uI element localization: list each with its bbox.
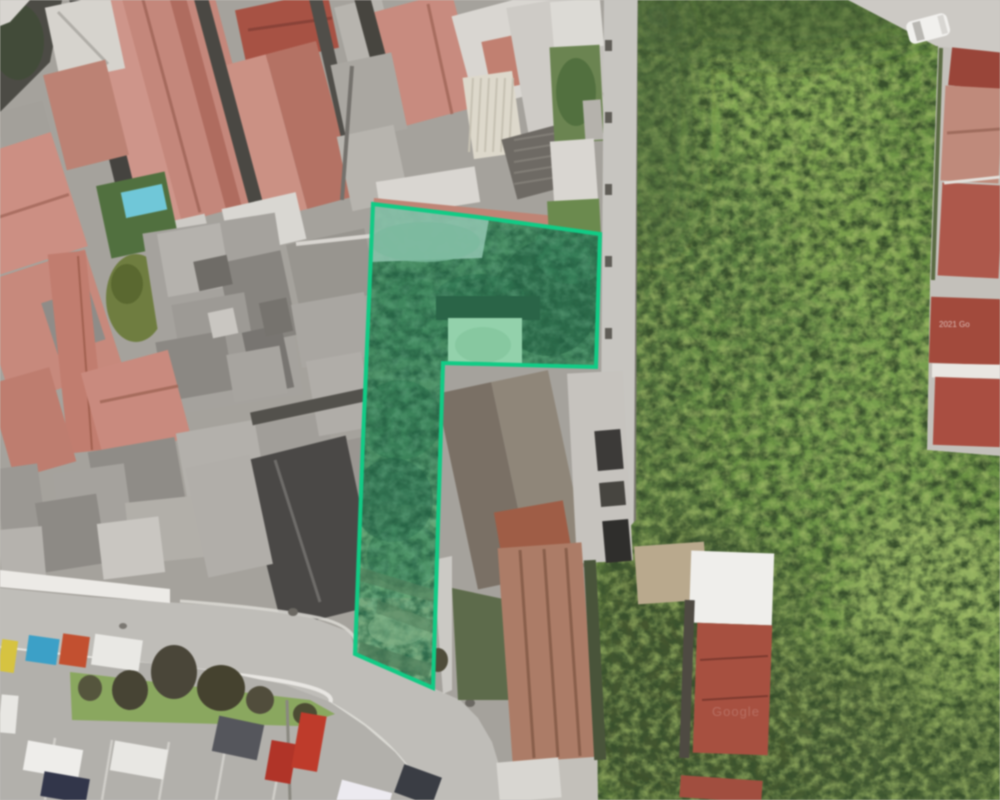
svg-text:Google: Google xyxy=(712,704,760,719)
svg-text:2021 Go: 2021 Go xyxy=(939,320,970,329)
